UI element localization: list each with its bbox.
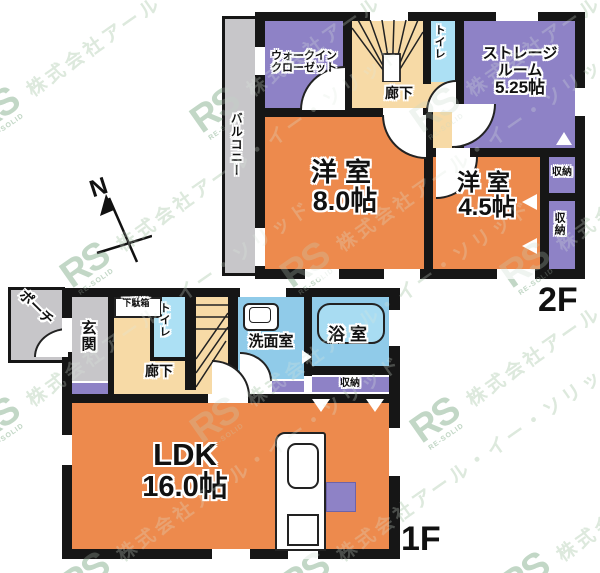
wall [423, 12, 431, 84]
window [497, 269, 535, 279]
wall [549, 193, 575, 201]
door-gap [62, 318, 72, 352]
toilet-1f-label: トイレ [158, 302, 170, 338]
floorplan-canvas: RSRE-SOLID株式会社アール・イー・ソリッドRSRE-SOLID株式会社ア… [0, 0, 600, 573]
door-gap [436, 148, 470, 157]
window [62, 435, 72, 465]
window [575, 88, 585, 116]
western-room-8-label: 洋室 8.0帖 [282, 158, 408, 216]
window [212, 549, 250, 559]
door-marker [522, 238, 537, 254]
walk-in-closet-label: ウォークインクローゼット [258, 50, 350, 74]
sink-basin-icon [249, 307, 271, 323]
floor-2f-tag: 2F [538, 281, 578, 320]
storage-room-label: ストレージルーム 5.25帖 [468, 46, 572, 98]
hallway-2f-label: 廊下 [378, 86, 420, 101]
door-marker [556, 132, 572, 145]
stairs-2f-treads [352, 20, 423, 82]
wall [150, 357, 185, 361]
wall [185, 296, 196, 390]
refrigerator-space [326, 482, 356, 512]
washroom-closet-1f [272, 381, 304, 392]
washroom-label: 洗面室 [240, 334, 302, 351]
western-room-45-label: 洋室 4.5帖 [440, 170, 534, 222]
window [389, 428, 400, 476]
north-arrow: N [82, 168, 152, 268]
shoe-cabinet-label: 下駄箱 [116, 299, 156, 309]
window [305, 269, 339, 279]
closet-upper-label: 収納 [547, 167, 577, 178]
floor-1f-tag: 1F [401, 520, 441, 559]
toilet-2f-label: トイレ [433, 24, 445, 60]
kitchen-sink-icon [287, 443, 319, 489]
door-marker [312, 399, 330, 412]
wall [575, 12, 585, 279]
wall [312, 366, 390, 375]
window [240, 288, 286, 297]
window [496, 12, 538, 21]
wall [304, 296, 312, 376]
entrance-closet-1f [72, 383, 108, 394]
closet-lower-label: 収納 [553, 212, 565, 236]
window [389, 310, 400, 346]
bathroom-label: 浴室 [316, 326, 384, 345]
closet-1f-label: 収納 [332, 378, 368, 389]
door-marker [366, 399, 384, 412]
window [384, 269, 420, 279]
door-marker [302, 350, 312, 364]
watermark-tile: RSRE-SOLID株式会社アール・イー・ソリッド [495, 342, 600, 573]
ldk-label: LDK 16.0帖 [118, 438, 252, 504]
watermark-tile: RSRE-SOLID株式会社アール・イー・ソリッド [495, 342, 600, 573]
hallway-1f-label: 廊下 [136, 364, 182, 379]
window [255, 228, 265, 266]
stairs-1f-treads [196, 297, 228, 389]
entrance-label: 玄関 [79, 320, 96, 352]
kitchen-stove-icon [287, 514, 319, 546]
balcony-label: バルコニー [229, 112, 242, 177]
